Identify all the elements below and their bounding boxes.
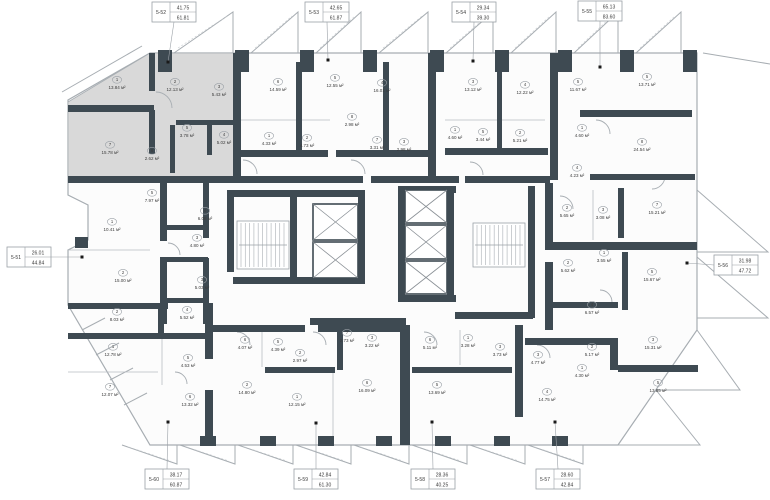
svg-text:5.62 м²: 5.62 м²: [561, 268, 576, 273]
svg-text:2.98 м²: 2.98 м²: [397, 147, 412, 152]
svg-text:5-54: 5-54: [456, 10, 466, 16]
svg-text:2.98 м²: 2.98 м²: [345, 122, 360, 127]
leader-dot: [599, 66, 602, 69]
svg-text:40.25: 40.25: [436, 483, 449, 489]
svg-text:26.01: 26.01: [32, 250, 45, 256]
svg-text:13.84 м²: 13.84 м²: [108, 85, 126, 90]
svg-text:61.81: 61.81: [177, 16, 190, 22]
svg-text:44.84: 44.84: [32, 261, 45, 267]
svg-text:5.17 м²: 5.17 м²: [585, 352, 600, 357]
svg-text:13.12 м²: 13.12 м²: [464, 87, 482, 92]
svg-text:4.30 м²: 4.30 м²: [575, 373, 590, 378]
svg-text:2.73 м²: 2.73 м²: [340, 338, 355, 343]
svg-text:16.09 м²: 16.09 м²: [358, 388, 376, 393]
leader-dot: [315, 422, 318, 425]
svg-text:5.11 м²: 5.11 м²: [423, 345, 438, 350]
leader-dot: [472, 60, 475, 63]
svg-text:5-57: 5-57: [540, 477, 550, 483]
svg-text:12.78 м²: 12.78 м²: [104, 352, 122, 357]
svg-text:3.31 м²: 3.31 м²: [370, 145, 385, 150]
svg-text:42.65: 42.65: [330, 5, 343, 11]
svg-text:31.98: 31.98: [739, 258, 752, 264]
svg-text:4.39 м²: 4.39 м²: [271, 347, 286, 352]
svg-text:14.59 м²: 14.59 м²: [269, 87, 287, 92]
svg-text:5-56: 5-56: [718, 263, 728, 269]
svg-text:5.21 м²: 5.21 м²: [513, 138, 528, 143]
leader-dot: [554, 421, 557, 424]
svg-text:13.71 м²: 13.71 м²: [638, 82, 656, 87]
svg-text:5-60: 5-60: [149, 477, 159, 483]
svg-text:15.31 м²: 15.31 м²: [644, 345, 662, 350]
svg-text:3.08 м²: 3.08 м²: [596, 215, 611, 220]
svg-text:12.13 м²: 12.13 м²: [166, 87, 184, 92]
svg-text:4.23 м²: 4.23 м²: [570, 173, 585, 178]
svg-text:12.55 м²: 12.55 м²: [326, 83, 344, 88]
svg-text:47.72: 47.72: [739, 269, 752, 275]
svg-text:42.84: 42.84: [561, 483, 574, 489]
leader-dot: [431, 421, 434, 424]
svg-text:65.13: 65.13: [603, 4, 616, 10]
svg-text:15.67 м²: 15.67 м²: [643, 277, 661, 282]
svg-text:4.77 м²: 4.77 м²: [531, 360, 546, 365]
svg-text:24.54 м²: 24.54 м²: [633, 147, 651, 152]
svg-text:61.87: 61.87: [330, 16, 343, 22]
svg-text:4.80 м²: 4.80 м²: [190, 243, 205, 248]
svg-text:5.52 м²: 5.52 м²: [180, 315, 195, 320]
svg-text:7.97 м²: 7.97 м²: [145, 198, 160, 203]
svg-text:11.67 м²: 11.67 м²: [570, 87, 587, 92]
svg-text:12.22 м²: 12.22 м²: [516, 90, 534, 95]
leader-dot: [167, 61, 170, 64]
leader-dot: [686, 262, 689, 265]
svg-text:41.75: 41.75: [177, 5, 190, 11]
leader-dot: [167, 421, 170, 424]
svg-text:61.30: 61.30: [319, 483, 332, 489]
svg-text:6.57 м²: 6.57 м²: [585, 310, 600, 315]
svg-text:5-59: 5-59: [298, 477, 308, 483]
svg-text:60.87: 60.87: [170, 483, 183, 489]
svg-text:13.85 м²: 13.85 м²: [649, 388, 667, 393]
svg-text:5-52: 5-52: [156, 10, 166, 16]
svg-text:3.22 м²: 3.22 м²: [365, 343, 380, 348]
svg-text:4.07 м²: 4.07 м²: [238, 345, 253, 350]
svg-text:5-55: 5-55: [582, 9, 592, 15]
svg-text:6.08 м²: 6.08 м²: [198, 216, 213, 221]
svg-text:8.03 м²: 8.03 м²: [110, 317, 125, 322]
svg-text:2.97 м²: 2.97 м²: [293, 358, 308, 363]
svg-text:13.69 м²: 13.69 м²: [428, 390, 446, 395]
svg-text:28.60: 28.60: [561, 472, 574, 478]
svg-text:4.60 м²: 4.60 м²: [448, 135, 463, 140]
svg-text:4.53 м²: 4.53 м²: [181, 363, 196, 368]
svg-text:13.32 м²: 13.32 м²: [181, 402, 199, 407]
svg-text:39.30: 39.30: [477, 16, 490, 22]
leader-dot: [327, 59, 330, 62]
svg-text:28.36: 28.36: [436, 472, 449, 478]
svg-text:5-58: 5-58: [415, 477, 425, 483]
svg-text:5.43 м²: 5.43 м²: [212, 92, 227, 97]
svg-text:83.60: 83.60: [603, 15, 616, 21]
svg-text:42.84: 42.84: [319, 472, 332, 478]
svg-text:4.33 м²: 4.33 м²: [262, 141, 277, 146]
svg-text:5.03 м²: 5.03 м²: [195, 285, 210, 290]
svg-text:15.00 м²: 15.00 м²: [114, 278, 132, 283]
svg-text:38.17: 38.17: [170, 472, 183, 478]
svg-text:4.60 м²: 4.60 м²: [575, 133, 590, 138]
svg-text:12.07 м²: 12.07 м²: [101, 392, 119, 397]
floor-plan-viewer: 113.84 м²212.13 м²35.43 м²53.78 м²45.02 …: [0, 0, 770, 500]
svg-text:3.78 м²: 3.78 м²: [180, 133, 195, 138]
svg-text:2.62 м²: 2.62 м²: [145, 156, 160, 161]
svg-text:12.15 м²: 12.15 м²: [288, 402, 306, 407]
svg-text:5-51: 5-51: [11, 255, 21, 261]
svg-text:3.55 м²: 3.55 м²: [597, 258, 612, 263]
svg-text:14.80 м²: 14.80 м²: [238, 390, 256, 395]
svg-text:15.78 м²: 15.78 м²: [101, 150, 119, 155]
leader-dot: [81, 256, 84, 259]
svg-text:14.75 м²: 14.75 м²: [538, 397, 556, 402]
svg-text:5.02 м²: 5.02 м²: [217, 140, 232, 145]
svg-text:4.73 м²: 4.73 м²: [300, 143, 315, 148]
svg-text:29.34: 29.34: [477, 5, 490, 11]
floor-plan-canvas: 113.84 м²212.13 м²35.43 м²53.78 м²45.02 …: [0, 0, 770, 500]
svg-text:10.41 м²: 10.41 м²: [103, 227, 121, 232]
svg-text:7: 7: [109, 384, 112, 389]
svg-text:5.65 м²: 5.65 м²: [560, 213, 575, 218]
svg-text:16.01 м²: 16.01 м²: [373, 88, 391, 93]
svg-text:3.28 м²: 3.28 м²: [461, 343, 476, 348]
svg-text:5-53: 5-53: [309, 10, 319, 16]
svg-text:3.44 м²: 3.44 м²: [476, 137, 491, 142]
svg-text:3.73 м²: 3.73 м²: [493, 352, 508, 357]
svg-text:15.21 м²: 15.21 м²: [648, 210, 666, 215]
